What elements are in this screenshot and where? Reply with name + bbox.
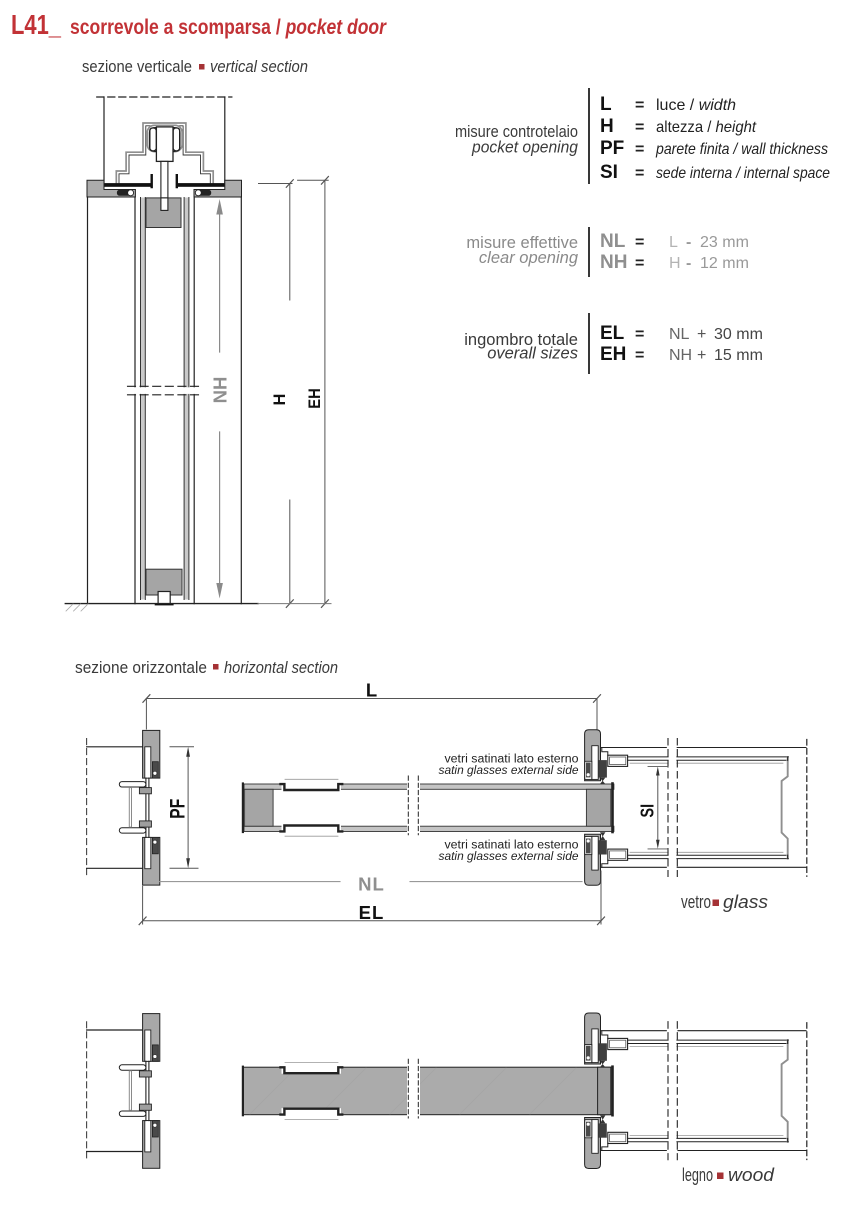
svg-text:wood: wood (728, 1165, 775, 1185)
svg-text:SI: SI (600, 162, 618, 183)
svg-text:=: = (635, 141, 644, 158)
svg-text:sezione verticale: sezione verticale (82, 58, 192, 76)
svg-text:12 mm: 12 mm (700, 255, 749, 272)
svg-text:=: = (635, 347, 644, 364)
svg-text:NH: NH (600, 252, 627, 273)
svg-text:+: + (697, 347, 706, 364)
svg-text:EL: EL (600, 323, 625, 344)
svg-text:PF: PF (167, 799, 190, 819)
svg-text:=: = (635, 326, 644, 343)
svg-text:PF: PF (600, 138, 624, 159)
svg-text:=: = (635, 165, 644, 182)
svg-text:luce / width: luce / width (656, 97, 736, 114)
svg-text:-: - (686, 255, 691, 272)
svg-text:legno: legno (682, 1165, 713, 1185)
svg-text:horizontal section: horizontal section (224, 659, 338, 677)
svg-text:vetro: vetro (681, 892, 711, 912)
svg-text:parete finita / wall thickness: parete finita / wall thickness (655, 141, 828, 158)
svg-text:vertical section: vertical section (210, 58, 308, 76)
svg-text:+: + (697, 326, 706, 343)
svg-text:pocket opening: pocket opening (471, 139, 579, 157)
svg-text:EL: EL (359, 902, 385, 923)
svg-text:NL: NL (669, 326, 690, 343)
svg-text:NH: NH (210, 377, 231, 404)
svg-text:overall sizes: overall sizes (487, 345, 578, 363)
svg-text:clear opening: clear opening (479, 249, 579, 267)
svg-text:=: = (635, 255, 644, 272)
svg-text:H: H (271, 394, 289, 406)
svg-text:H: H (600, 116, 614, 137)
svg-text:satin glasses external side: satin glasses external side (439, 851, 579, 863)
svg-text:sede interna / internal space: sede interna / internal space (656, 165, 830, 182)
svg-text:glass: glass (723, 892, 768, 912)
svg-text:vetri satinati lato esterno: vetri satinati lato esterno (445, 754, 579, 766)
svg-text:=: = (635, 119, 644, 136)
svg-text:L: L (366, 680, 377, 701)
svg-text:=: = (635, 234, 644, 251)
svg-text:satin glasses external side: satin glasses external side (439, 765, 579, 777)
svg-text:vetri satinati lato esterno: vetri satinati lato esterno (445, 840, 579, 852)
svg-text:NL: NL (600, 231, 626, 252)
svg-text:=: = (635, 97, 644, 114)
svg-text:L41_: L41_ (11, 9, 61, 40)
svg-text:L: L (669, 234, 678, 251)
svg-text:23 mm: 23 mm (700, 234, 749, 251)
svg-text:NL: NL (358, 874, 385, 895)
svg-text:sezione orizzontale: sezione orizzontale (75, 659, 207, 677)
svg-text:-: - (686, 234, 691, 251)
svg-text:EH: EH (600, 344, 626, 365)
svg-text:scorrevole a scomparsa / pocke: scorrevole a scomparsa / pocket door (70, 15, 387, 39)
svg-text:H: H (669, 255, 681, 272)
svg-text:SI: SI (638, 804, 658, 818)
svg-text:15 mm: 15 mm (714, 347, 763, 364)
svg-text:altezza / height: altezza / height (656, 119, 757, 136)
svg-text:30 mm: 30 mm (714, 326, 763, 343)
svg-text:EH: EH (306, 388, 324, 409)
svg-text:L: L (600, 94, 612, 115)
svg-text:NH: NH (669, 347, 692, 364)
